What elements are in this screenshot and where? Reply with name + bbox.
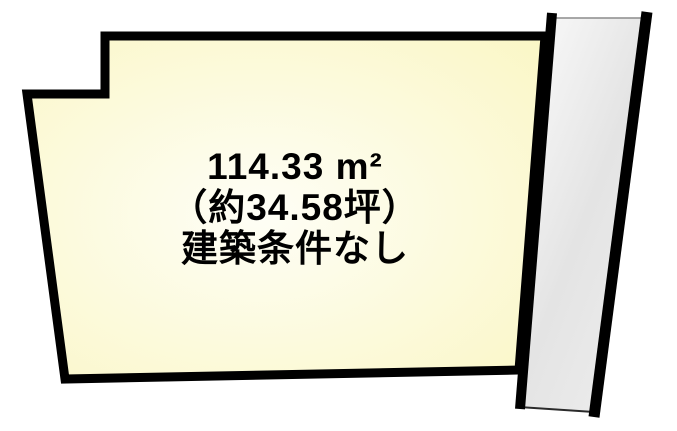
plot-shape: [27, 36, 545, 379]
plot-drawing: [0, 0, 677, 431]
land-plot-diagram: 114.33 m² （約34.58坪） 建築条件なし: [0, 0, 677, 431]
